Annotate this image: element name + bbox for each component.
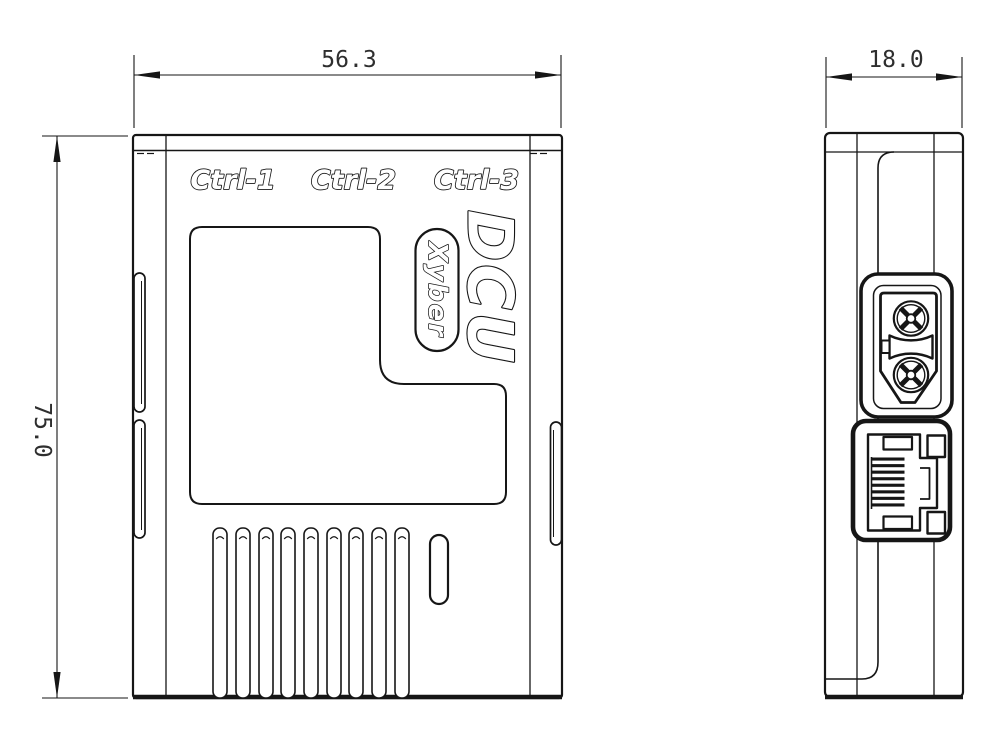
- side-clip-tab: [134, 273, 145, 412]
- front-view: Ctrl-1 Ctrl-2 Ctrl-3 DCU Xyber: [133, 135, 562, 698]
- arrowhead: [134, 71, 160, 78]
- width-dimension: 56.3: [134, 47, 561, 128]
- vent-slot: [259, 528, 273, 698]
- left-clip-tabs: [134, 273, 145, 538]
- side-view: [825, 133, 963, 697]
- port-label-ctrl-3: Ctrl-3: [434, 165, 519, 196]
- arrowhead: [53, 136, 60, 162]
- height-dimension-value: 75.0: [29, 402, 55, 457]
- arrowhead: [826, 73, 852, 80]
- arrowhead: [535, 71, 561, 78]
- oval-slot: [430, 535, 448, 604]
- arrowhead: [936, 73, 962, 80]
- side-clip-tab: [134, 420, 145, 538]
- depth-dimension-value: 18.0: [868, 47, 923, 73]
- xt30-power-connector-icon: [861, 274, 952, 417]
- vent-slot: [236, 528, 250, 698]
- xt30-key-notch: [882, 341, 890, 354]
- mechanical-drawing-page: Ctrl-1 Ctrl-2 Ctrl-3 DCU Xyber: [0, 0, 1000, 737]
- vent-slot: [395, 528, 409, 698]
- vent-slot: [349, 528, 363, 698]
- vent-slot: [281, 528, 295, 698]
- vent-slot: [304, 528, 318, 698]
- vent-slot: [372, 528, 386, 698]
- depth-dimension: 18.0: [826, 47, 962, 128]
- width-dimension-value: 56.3: [321, 47, 376, 73]
- rj45-ethernet-port-icon: [853, 421, 950, 540]
- arrowhead: [53, 672, 60, 698]
- right-clip-tab: [551, 422, 562, 545]
- vent-slots: [213, 528, 409, 698]
- height-dimension: 75.0: [29, 136, 128, 698]
- brand-badge-label: Xyber: [422, 240, 452, 338]
- port-label-ctrl-1: Ctrl-1: [190, 165, 275, 196]
- product-logo-dcu: DCU: [454, 210, 527, 366]
- mechanical-drawing-canvas: Ctrl-1 Ctrl-2 Ctrl-3 DCU Xyber: [0, 0, 1000, 737]
- side-clip-tab: [551, 422, 562, 545]
- brand-badge-xyber: Xyber: [416, 229, 459, 351]
- port-label-ctrl-2: Ctrl-2: [311, 165, 396, 196]
- vent-slot: [327, 528, 341, 698]
- vent-slot: [213, 528, 227, 698]
